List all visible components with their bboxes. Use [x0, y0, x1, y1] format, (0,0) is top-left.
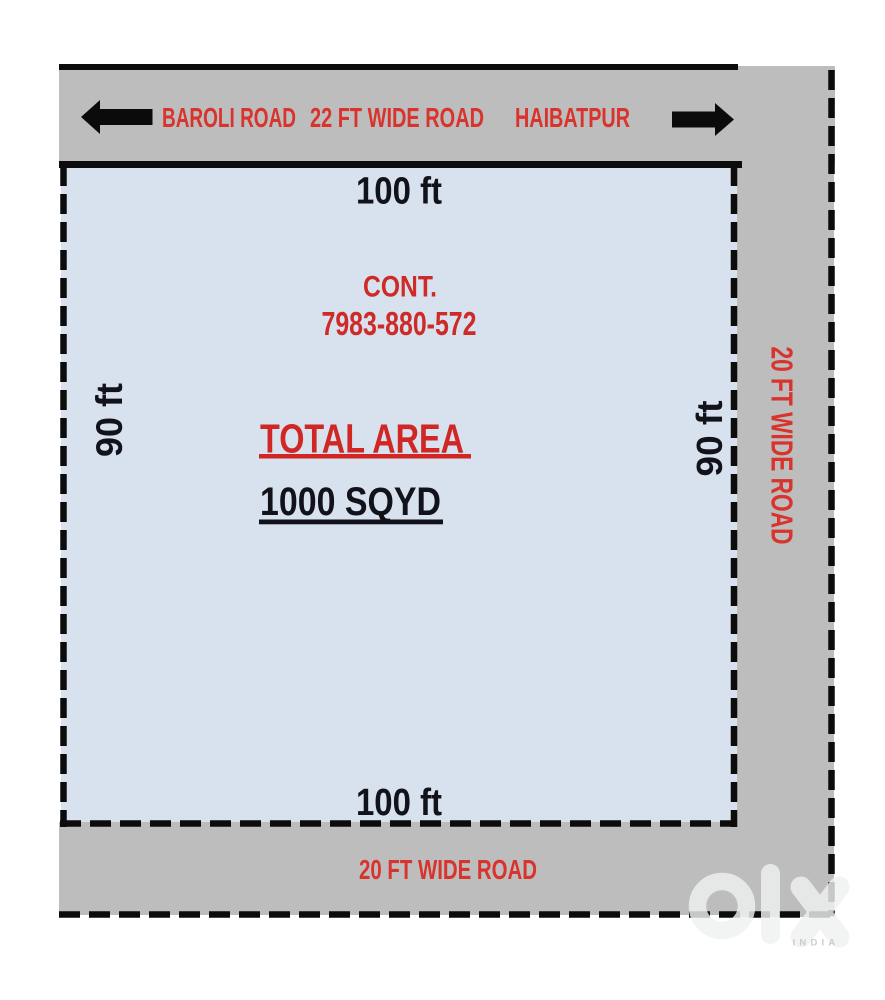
svg-text:INDIA: INDIA [793, 938, 840, 949]
svg-text:CONT.: CONT. [363, 271, 437, 304]
svg-text:20 FT WIDE ROAD: 20 FT WIDE ROAD [359, 854, 537, 885]
svg-text:HAIBATPUR: HAIBATPUR [515, 102, 630, 133]
svg-text:1000 SQYD: 1000 SQYD [260, 480, 441, 524]
svg-text:BAROLI ROAD: BAROLI ROAD [162, 102, 296, 133]
svg-text:7983-880-572: 7983-880-572 [322, 305, 477, 342]
svg-text:90 ft: 90 ft [89, 383, 130, 457]
svg-text:20 FT WIDE ROAD: 20 FT WIDE ROAD [765, 347, 800, 545]
svg-text:22 FT WIDE ROAD: 22 FT WIDE ROAD [310, 102, 484, 133]
svg-text:100 ft: 100 ft [356, 782, 442, 824]
svg-text:90 ft: 90 ft [689, 400, 730, 476]
svg-text:100 ft: 100 ft [356, 171, 442, 213]
